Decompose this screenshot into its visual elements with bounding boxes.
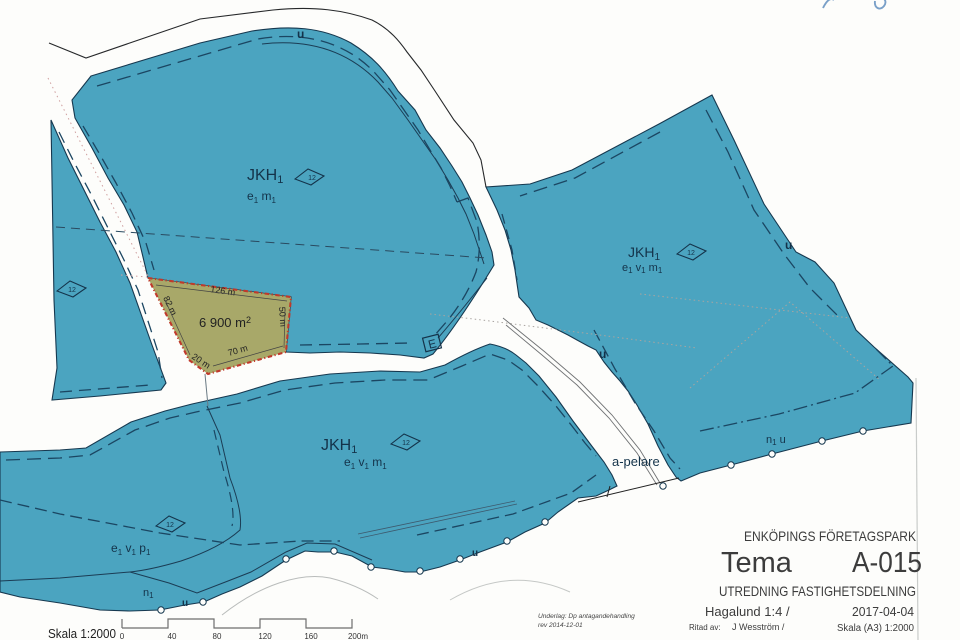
svg-text:50 m: 50 m (277, 306, 288, 327)
svg-text:12: 12 (308, 175, 316, 182)
svg-text:u: u (297, 27, 304, 41)
svg-text:40: 40 (168, 632, 177, 640)
svg-text:a-pelare: a-pelare (612, 454, 660, 469)
svg-text:ENKÖPINGS FÖRETAGSPARK: ENKÖPINGS FÖRETAGSPARK (744, 527, 917, 544)
svg-text:12: 12 (68, 287, 76, 294)
svg-text:6 900 m2: 6 900 m2 (199, 315, 251, 330)
svg-text:Tema: Tema (721, 547, 793, 579)
svg-text:12: 12 (166, 522, 174, 529)
svg-text:UTREDNING FASTIGHETSDELNING: UTREDNING FASTIGHETSDELNING (719, 583, 916, 599)
svg-text:12: 12 (687, 250, 695, 257)
svg-text:Skala 1:2000: Skala 1:2000 (48, 626, 116, 640)
svg-text:0: 0 (120, 632, 125, 640)
svg-text:n1 u: n1 u (766, 434, 786, 447)
svg-text:u: u (182, 598, 188, 609)
svg-text:120: 120 (258, 632, 272, 640)
svg-text:Skala (A3) 1:2000: Skala (A3) 1:2000 (837, 623, 914, 634)
svg-text:rev 2014-12-01: rev 2014-12-01 (538, 622, 583, 629)
svg-text:2017-04-04: 2017-04-04 (852, 604, 914, 619)
svg-text:e1 v1 p1: e1 v1 p1 (111, 541, 151, 557)
svg-text:u: u (599, 347, 606, 361)
svg-text:u: u (785, 238, 792, 252)
svg-text:200m: 200m (348, 632, 368, 640)
svg-text:J Wesström /: J Wesström / (732, 622, 785, 632)
svg-text:A-015: A-015 (852, 547, 922, 579)
svg-text:Ritad av:: Ritad av: (689, 623, 721, 632)
svg-text:160: 160 (304, 632, 318, 640)
svg-text:Hagalund 1:4 /: Hagalund 1:4 / (705, 604, 790, 619)
svg-text:Underlag: Dp antagandehandlin: Underlag: Dp antagandehandling (538, 613, 635, 620)
svg-text:u: u (472, 548, 478, 559)
svg-text:12: 12 (402, 440, 410, 447)
svg-text:80: 80 (213, 632, 222, 640)
